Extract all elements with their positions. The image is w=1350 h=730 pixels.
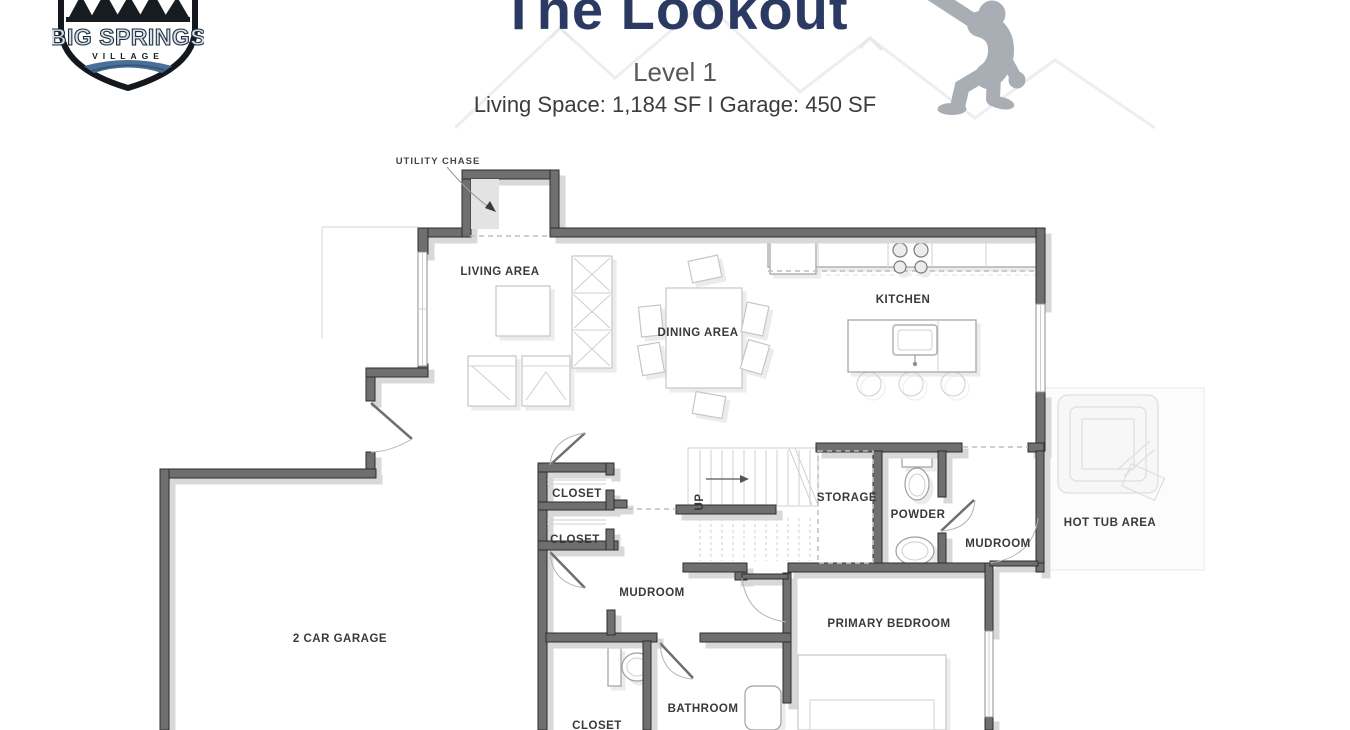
floor-plan-drawing: UTILITY CHASE LIVING AREA DINING AREA KI… — [0, 0, 1350, 730]
bedroom-door — [742, 574, 788, 579]
label-kitchen: KITCHEN — [876, 294, 931, 306]
primary-bed — [798, 655, 946, 730]
label-powder: POWDER — [891, 509, 946, 521]
label-living-area: LIVING AREA — [460, 266, 539, 278]
bathroom-shower — [745, 686, 781, 730]
label-mudroom-center: MUDROOM — [619, 587, 684, 599]
powder-sink — [896, 537, 934, 565]
label-primary-bedroom: PRIMARY BEDROOM — [827, 618, 950, 630]
label-utility-chase: UTILITY CHASE — [396, 156, 481, 167]
label-closet-1: CLOSET — [552, 488, 602, 500]
refrigerator — [770, 240, 816, 274]
label-dining-area: DINING AREA — [657, 327, 738, 339]
kitchen-counters — [768, 237, 1040, 274]
label-closet-bottom: CLOSET — [572, 720, 622, 730]
label-mudroom-right: MUDROOM — [965, 538, 1030, 550]
label-stairs-up: UP — [694, 494, 706, 511]
hot-tub-deck — [1044, 388, 1204, 570]
label-storage: STORAGE — [817, 492, 877, 504]
living-room-furniture — [468, 256, 612, 406]
label-bathroom: BATHROOM — [668, 703, 739, 715]
label-hot-tub-area: HOT TUB AREA — [1064, 517, 1156, 529]
storage-outline — [818, 451, 873, 563]
powder-toilet — [902, 455, 932, 500]
kitchen-island — [848, 320, 976, 396]
floor-plan-page: BIG SPRINGS VILLAGE The Lookout Level 1 … — [0, 0, 1350, 730]
porch-outline — [322, 227, 418, 338]
label-closet-2: CLOSET — [550, 534, 600, 546]
label-garage: 2 CAR GARAGE — [293, 633, 387, 645]
